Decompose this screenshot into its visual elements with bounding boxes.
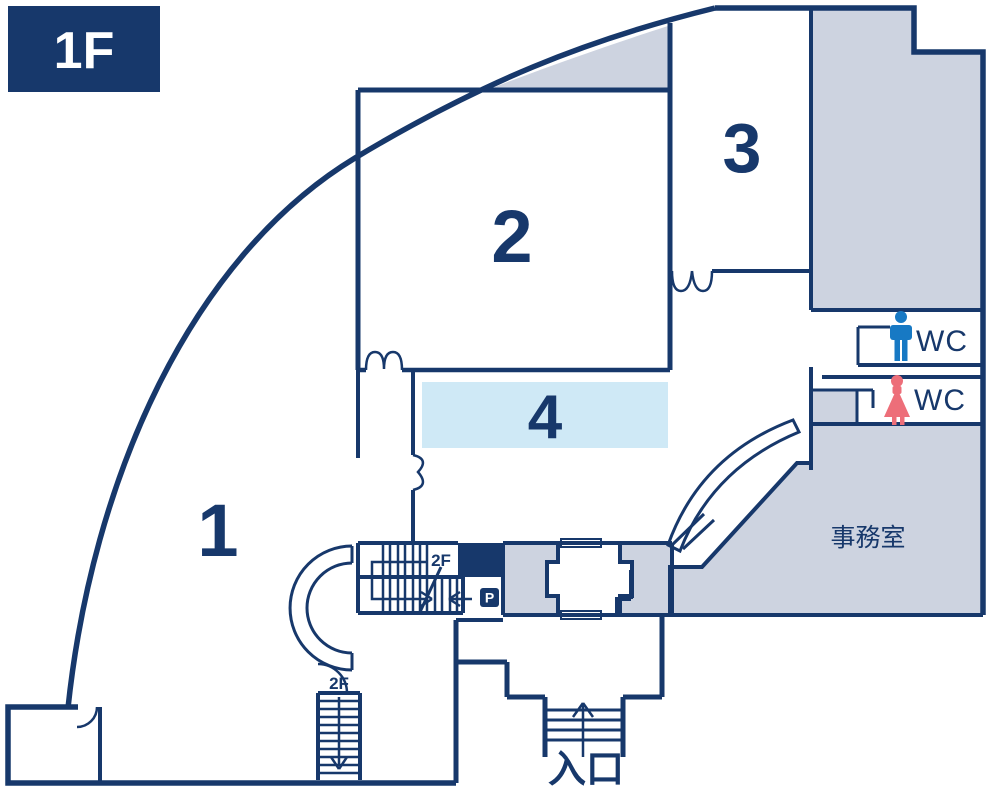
p-badge: P	[480, 588, 499, 607]
office-area	[670, 424, 983, 615]
female-icon-head	[891, 375, 903, 387]
stairs-mid-lower-steps	[383, 577, 457, 613]
male-icon	[890, 311, 912, 361]
room-1-label: 1	[197, 489, 238, 572]
stairs-mid-upper-steps	[383, 543, 427, 577]
elevator-block	[458, 543, 502, 577]
male-icon-leg-left	[895, 338, 901, 361]
room-3-label: 3	[723, 109, 762, 187]
p-badge-label: P	[485, 590, 494, 606]
female-icon-leg-left	[892, 417, 897, 425]
stairs-mid-up-path-arrow	[372, 562, 432, 606]
room-2-label: 2	[491, 195, 532, 278]
stairs-mid-second-arrow	[449, 592, 472, 606]
male-icon-leg-right	[902, 338, 908, 361]
floor-badge-label: 1F	[54, 22, 115, 80]
duct-space	[811, 390, 857, 424]
floor-badge: 1F	[8, 6, 160, 92]
room2-double-door	[366, 352, 402, 370]
porch-right-wall	[623, 615, 662, 757]
stairs-bottom-label: 2F	[329, 674, 349, 693]
wc-men-label: WC	[916, 325, 968, 358]
corridor-double-door	[413, 455, 423, 490]
small-room-door-arc	[77, 707, 97, 727]
male-icon-body	[890, 325, 912, 340]
porch-left-wall	[456, 620, 545, 783]
room3-double-door	[672, 271, 712, 291]
male-icon-head	[895, 311, 907, 323]
female-icon-dress	[884, 388, 910, 417]
room-4-label: 4	[528, 383, 563, 452]
wc-women-label: WC	[914, 384, 966, 417]
office-label: 事務室	[830, 523, 905, 552]
female-icon	[884, 375, 910, 425]
door-symbols	[77, 271, 712, 727]
outer-wall-bottom	[8, 707, 456, 783]
vestibule-walls	[547, 543, 632, 615]
entrance-label: 入口	[548, 747, 624, 791]
stairs-break-line	[420, 567, 441, 612]
vestibule-room	[547, 539, 632, 619]
floor-plan-page: 1F P 1 2 3 4 事務室 入口 WC WC 2F 2F	[0, 0, 992, 800]
female-icon-leg-right	[900, 417, 905, 425]
floor-plan: 1F P 1 2 3 4 事務室 入口 WC WC 2F 2F	[0, 0, 992, 800]
stairs-mid-label: 2F	[431, 551, 451, 570]
curve-infill-area	[487, 26, 668, 90]
c-shaped-wall	[290, 546, 352, 670]
wc-men-partition	[858, 327, 890, 365]
